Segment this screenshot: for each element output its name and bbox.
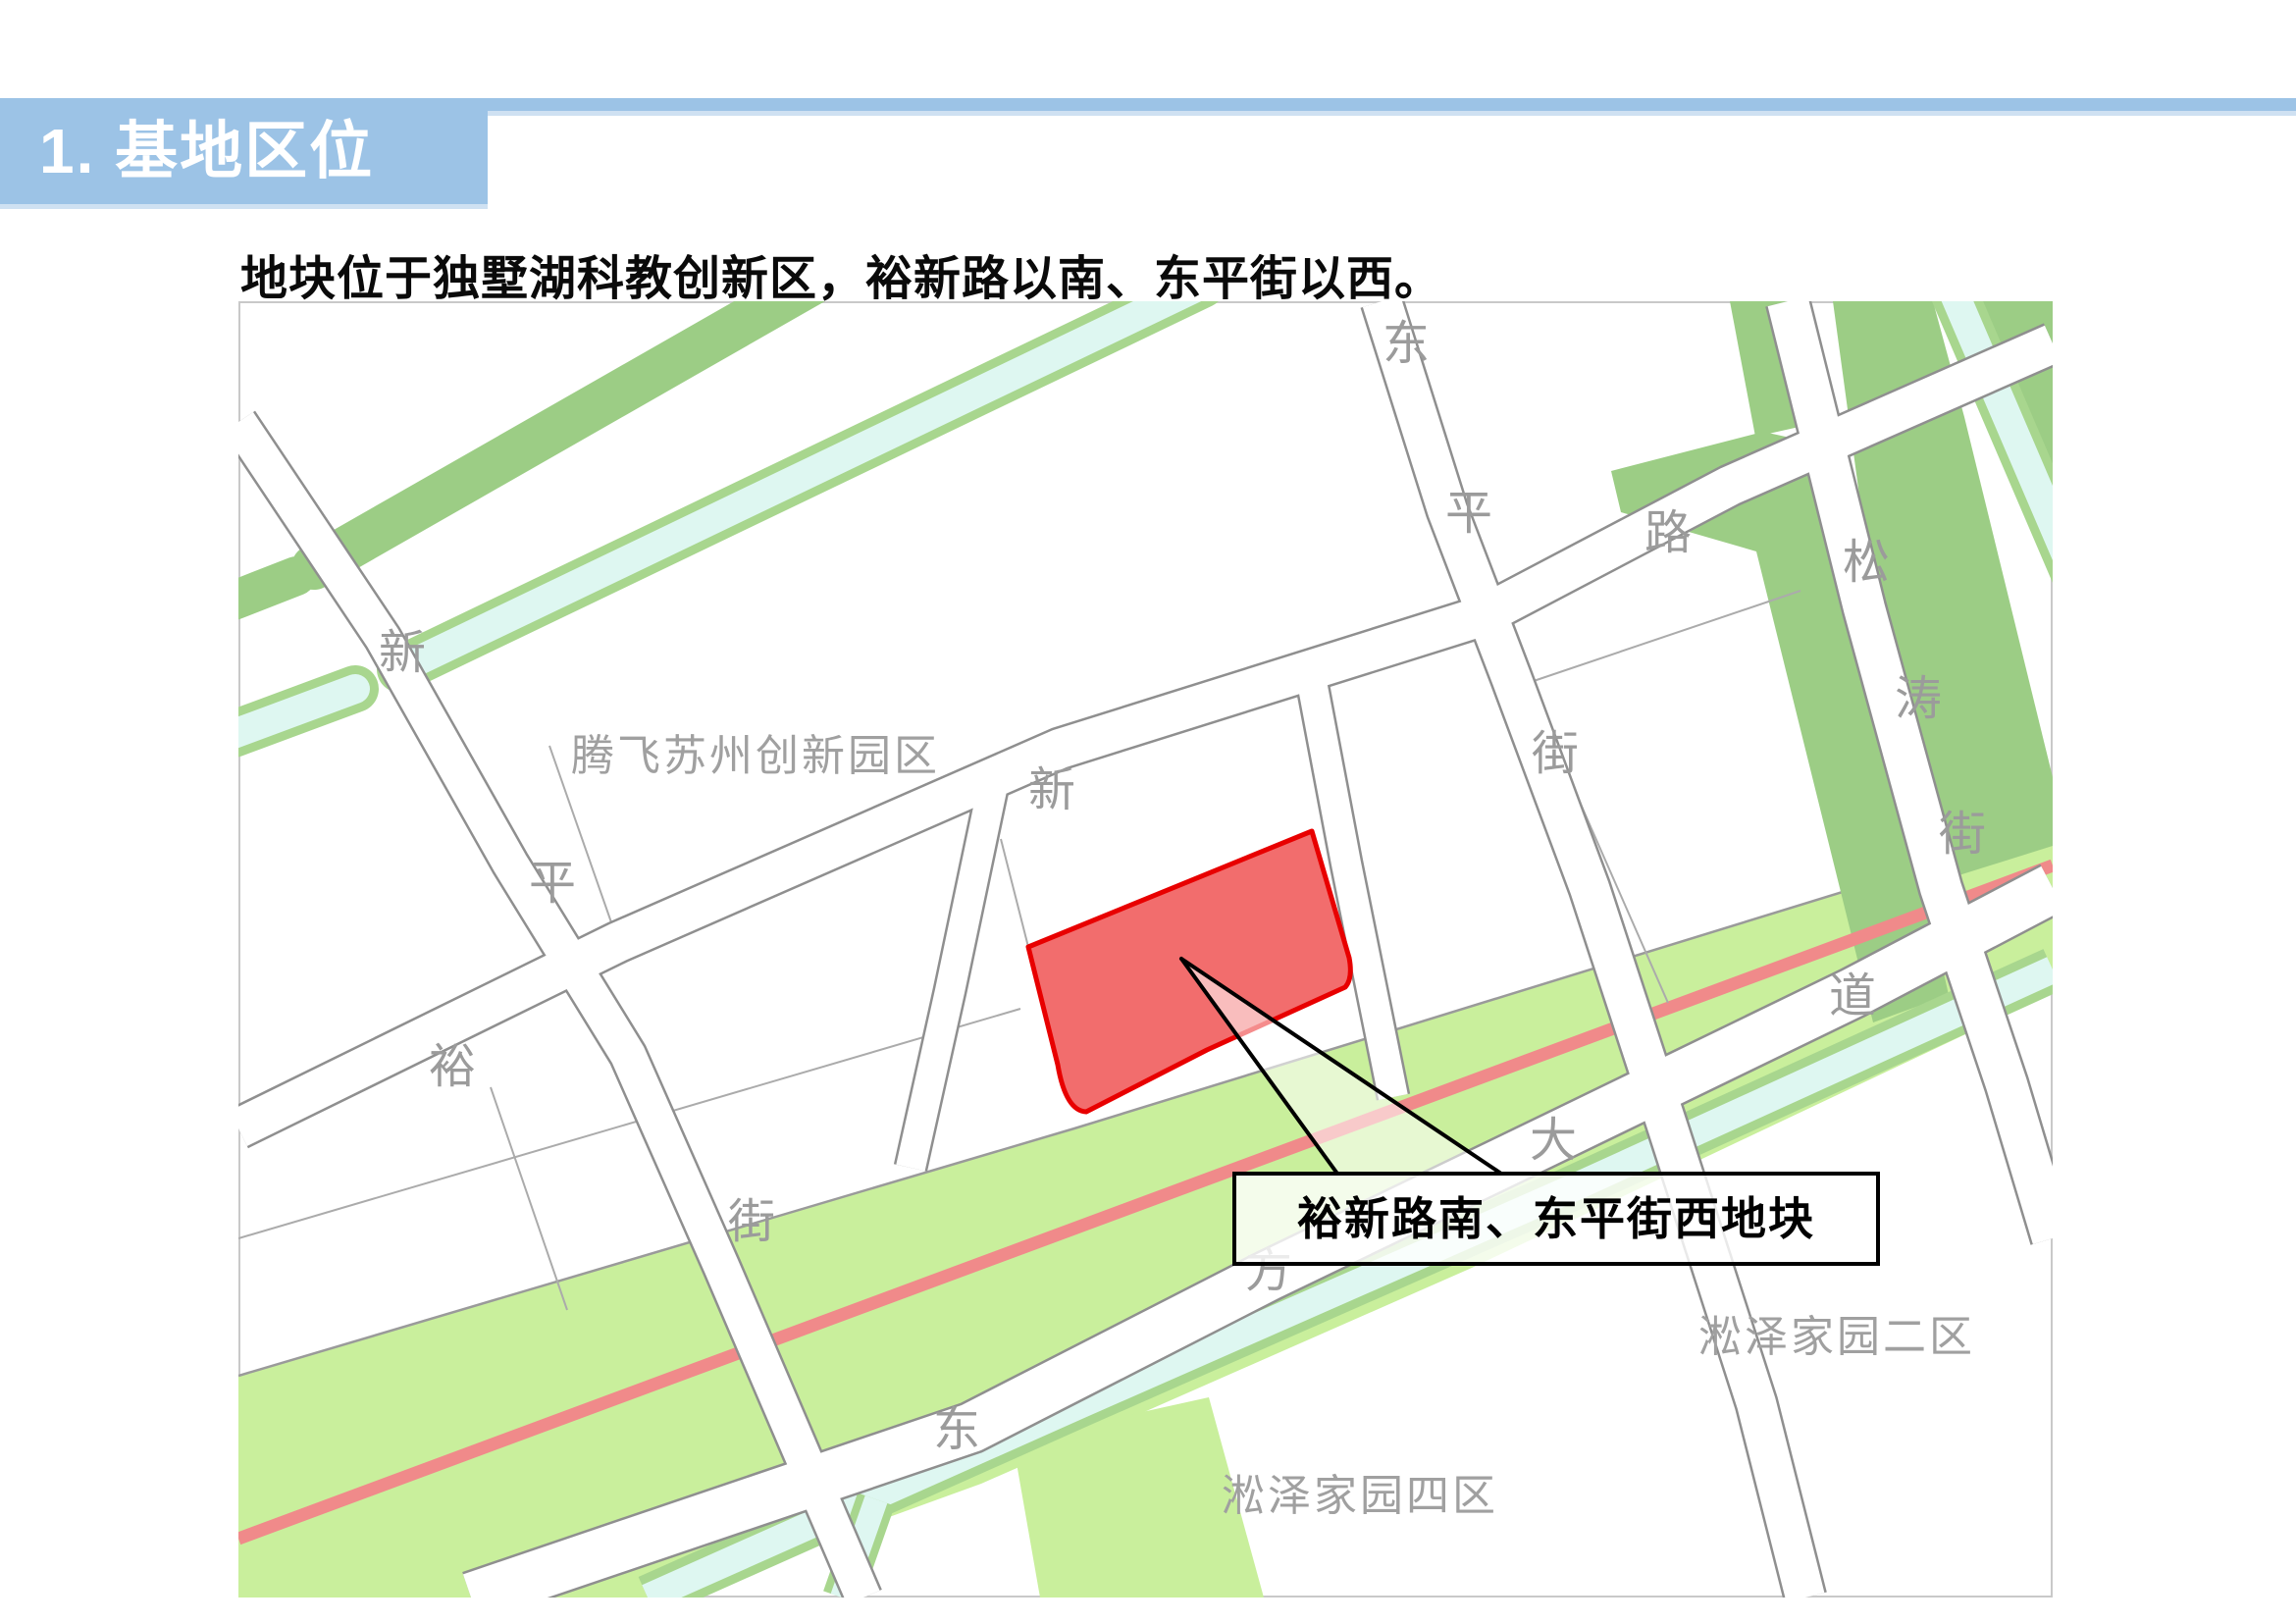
- parcel-callout-box: 裕新路南、东平街西地块: [1232, 1172, 1880, 1266]
- site-map: [0, 0, 2296, 1624]
- slide: 1. 基地区位 地块位于独墅湖科教创新区，裕新路以南、东平街以西。: [0, 0, 2296, 1624]
- parcel-callout-text: 裕新路南、东平街西地块: [1236, 1176, 1876, 1262]
- green-stripe-stub: [234, 576, 296, 601]
